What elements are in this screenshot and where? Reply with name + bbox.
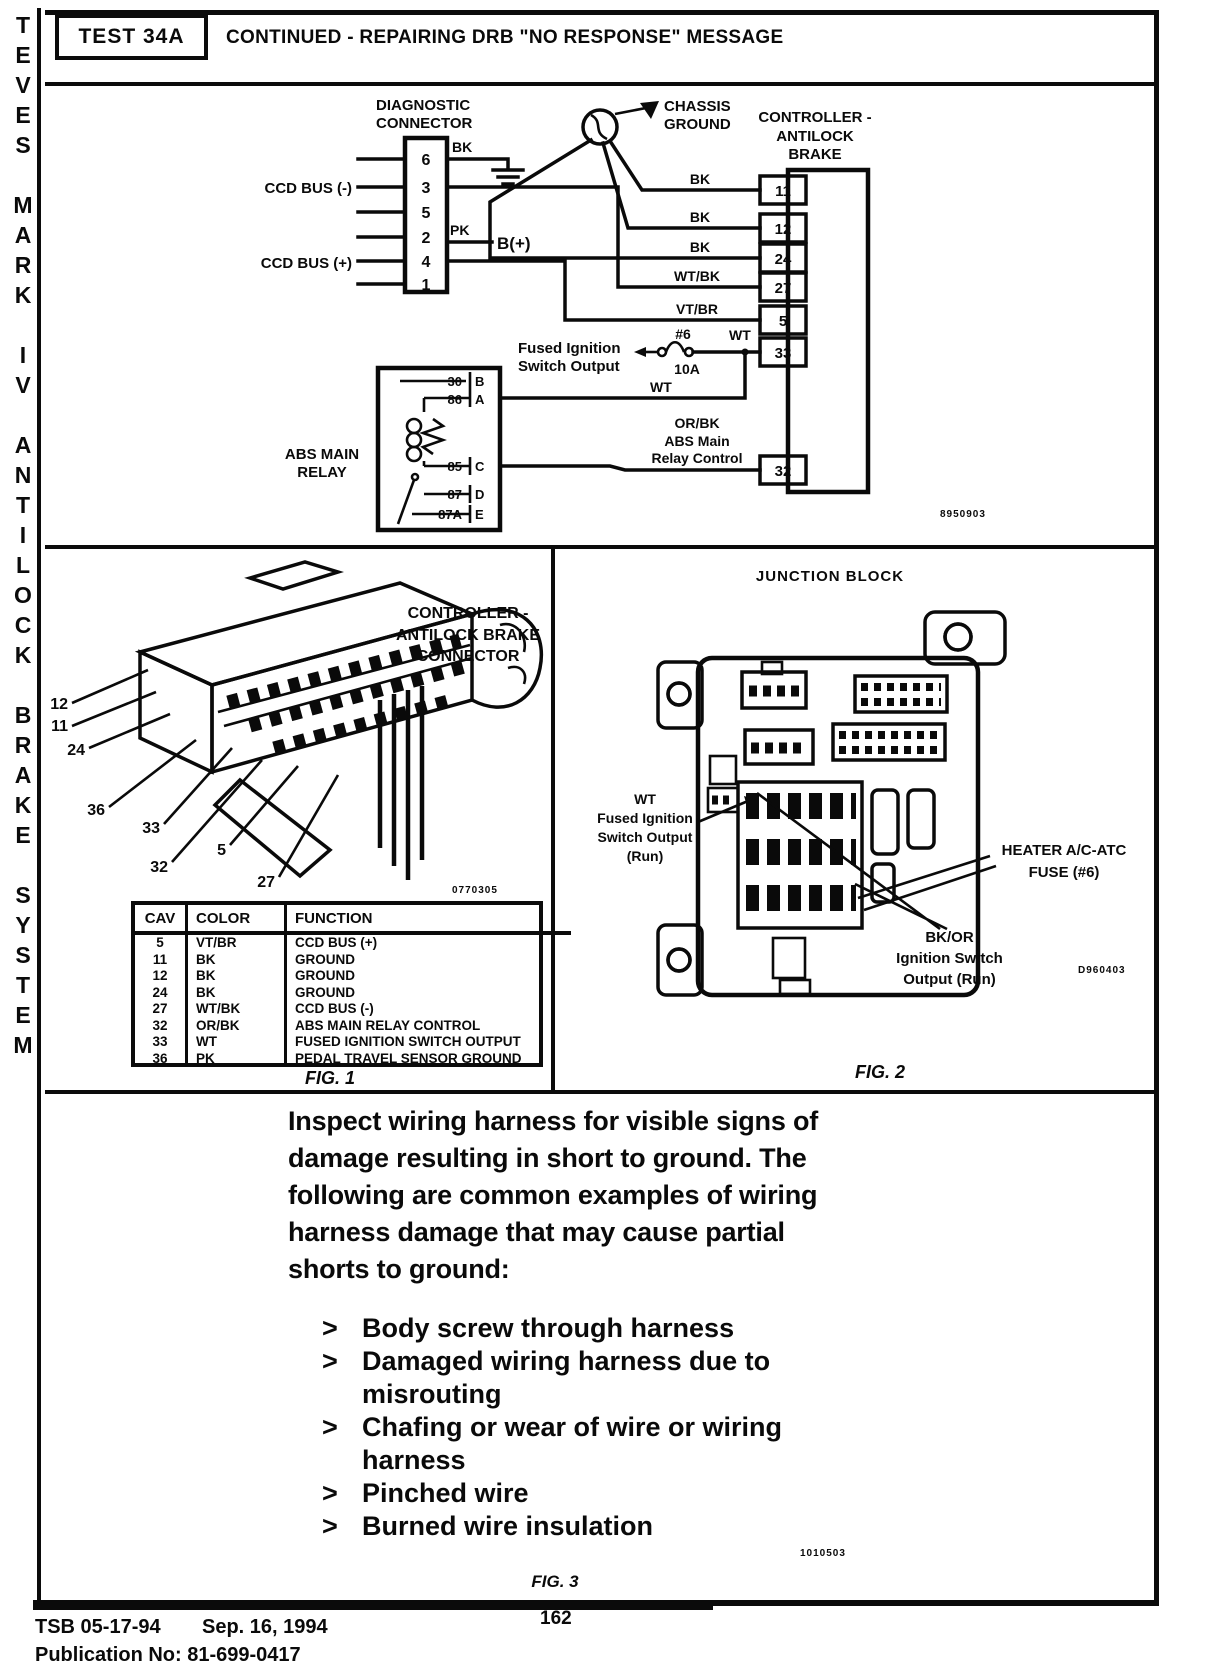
connector-isometric-body	[140, 562, 541, 880]
table-row: 32OR/BKABS MAIN RELAY CONTROL	[135, 1018, 571, 1035]
svg-text:11: 11	[51, 718, 68, 735]
svg-text:ANTILOCK: ANTILOCK	[776, 128, 854, 145]
table-row: 36PKPEDAL TRAVEL SENSOR GROUND	[135, 1051, 571, 1068]
svg-text:33: 33	[142, 820, 160, 837]
diag-pin: 3	[422, 180, 431, 197]
svg-text:12: 12	[775, 221, 792, 238]
svg-text:85: 85	[448, 459, 462, 474]
top-border	[45, 10, 1159, 15]
fig2-caption: FIG. 2	[800, 1062, 960, 1083]
svg-text:24: 24	[775, 251, 792, 268]
svg-text:32: 32	[150, 859, 168, 876]
svg-text:RELAY: RELAY	[297, 464, 346, 481]
chassis-ground-lead	[615, 108, 646, 114]
table-row: 33WTFUSED IGNITION SWITCH OUTPUT	[135, 1034, 571, 1051]
diagnostic-connector-label: DIAGNOSTIC	[376, 97, 470, 114]
sidebar-vertical-title: TEVES MARK IV ANTILOCK BRAKE SYSTEM	[0, 12, 37, 1612]
svg-text:86: 86	[448, 392, 462, 407]
svg-text:11: 11	[775, 183, 791, 200]
svg-text:C: C	[475, 459, 485, 474]
diag-pin: 1	[422, 277, 431, 294]
svg-text:32: 32	[775, 463, 792, 480]
controller-box	[788, 170, 868, 492]
sidebar-divider	[37, 8, 41, 1608]
diagram-code: 8950903	[940, 509, 986, 520]
publication-number: Publication No: 81-699-0417	[35, 1644, 301, 1667]
fig1-code: 0770305	[452, 885, 498, 896]
test-number-box: TEST 34A	[55, 14, 208, 60]
wire-label-bk: BK	[690, 239, 710, 255]
svg-text:A: A	[475, 392, 485, 407]
fig2-leader-lines	[698, 793, 996, 929]
relay-control-label: OR/BK	[674, 415, 719, 431]
fig1-callouts: 12 11 24 36 33 32 5 27	[50, 670, 338, 891]
wiring-diagram: DIAGNOSTIC CONNECTOR 6 3 5 2 4 1 CCD BUS…	[45, 84, 1157, 545]
left-arrow-icon	[634, 347, 646, 357]
bplus-label: B(+)	[497, 234, 531, 253]
table-header: COLOR	[187, 905, 286, 933]
bkor-ignition-label: BK/OR Ignition Switch Output (Run)	[862, 927, 1037, 990]
svg-text:D: D	[475, 487, 484, 502]
list-item: >Body screw through harness	[322, 1312, 867, 1345]
wire-label-bk: BK	[690, 171, 710, 187]
diag-pin: 4	[422, 254, 431, 271]
damage-examples-list: >Body screw through harness >Damaged wir…	[322, 1312, 867, 1543]
test-number-label: TEST 34A	[78, 25, 184, 49]
wire-label-wt2: WT	[650, 379, 672, 395]
svg-text:E: E	[475, 507, 484, 522]
diag-pin: 2	[422, 230, 431, 247]
table-header: FUNCTION	[286, 905, 572, 933]
table-row: 11BKGROUND	[135, 952, 571, 969]
fuse-number: #6	[675, 326, 691, 342]
diagnostic-pin-stubs	[358, 159, 405, 284]
fig3-caption: FIG. 3	[495, 1572, 615, 1592]
list-item: >Burned wire insulation	[322, 1510, 867, 1543]
table-row: 24BKGROUND	[135, 985, 571, 1002]
splice-curve	[591, 115, 607, 139]
bullet-marker: >	[322, 1411, 338, 1444]
svg-text:12: 12	[50, 696, 68, 713]
svg-text:27: 27	[257, 874, 275, 891]
table-header: CAV	[135, 905, 187, 933]
tsb-page: TEVES MARK IV ANTILOCK BRAKE SYSTEM TEST…	[0, 0, 1232, 1672]
wire-label-vtbr: VT/BR	[676, 301, 718, 317]
splice-symbol	[583, 110, 617, 144]
ground-symbol	[447, 159, 523, 184]
bullet-marker: >	[322, 1312, 338, 1345]
wire-label-bk-ground: BK	[452, 139, 472, 155]
fuse-terminal	[658, 348, 666, 356]
svg-text:24: 24	[67, 742, 85, 759]
svg-text:27: 27	[775, 280, 792, 297]
svg-text:5: 5	[217, 842, 226, 859]
wire-label-wt: WT	[729, 327, 751, 343]
page-number: 162	[540, 1608, 572, 1630]
tsb-number: TSB 05-17-94	[35, 1616, 161, 1639]
bk-wire-11	[610, 141, 760, 190]
heater-fuse-label: HEATER A/C-ATC FUSE (#6)	[975, 840, 1153, 884]
cav-color-function-table: CAV COLOR FUNCTION 5VT/BRCCD BUS (+) 11B…	[135, 905, 571, 1067]
svg-text:ABS Main: ABS Main	[664, 433, 729, 449]
ccd-bus-minus-label: CCD BUS (-)	[265, 180, 353, 197]
wire-label-bk: BK	[690, 209, 710, 225]
wire-label-pk: PK	[450, 222, 469, 238]
fuse-element	[666, 342, 684, 352]
svg-text:Switch Output: Switch Output	[518, 358, 620, 375]
page-title: CONTINUED - REPAIRING DRB "NO RESPONSE" …	[226, 27, 783, 49]
bullet-marker: >	[322, 1345, 338, 1378]
chassis-ground-label: CHASSIS	[664, 98, 731, 115]
fig2-code: D960403	[1078, 965, 1126, 976]
inspection-paragraph: Inspect wiring harness for visible signs…	[288, 1103, 870, 1288]
svg-text:87: 87	[448, 487, 462, 502]
svg-text:BRAKE: BRAKE	[788, 146, 841, 163]
ccd-bus-plus-label: CCD BUS (+)	[261, 255, 352, 272]
svg-text:30: 30	[448, 374, 462, 389]
svg-text:33: 33	[775, 345, 792, 362]
bullet-marker: >	[322, 1477, 338, 1510]
diag-pin: 6	[422, 152, 431, 169]
bullet-marker: >	[322, 1510, 338, 1543]
relay-control-wire	[500, 466, 760, 470]
fig3-code: 1010503	[800, 1548, 846, 1559]
svg-text:GROUND: GROUND	[664, 116, 731, 133]
list-item: >Damaged wiring harness due to misroutin…	[322, 1345, 867, 1411]
relay-coil-icon	[398, 398, 443, 524]
table-row: 12BKGROUND	[135, 968, 571, 985]
list-item: >Chafing or wear of wire or wiring harne…	[322, 1411, 867, 1477]
abs-main-relay-label: ABS MAIN	[285, 446, 359, 463]
svg-text:Relay Control: Relay Control	[651, 450, 742, 466]
tsb-date: Sep. 16, 1994	[202, 1616, 328, 1639]
table-row: 5VT/BRCCD BUS (+)	[135, 933, 571, 952]
diag-pin: 5	[422, 205, 431, 222]
wire-label-wtbk: WT/BK	[674, 268, 720, 284]
fused-ignition-label: Fused Ignition	[518, 340, 621, 357]
controller-label: CONTROLLER -	[758, 109, 871, 126]
bottom-border-smear	[33, 1606, 713, 1610]
table-row: 27WT/BKCCD BUS (-)	[135, 1001, 571, 1018]
list-item: >Pinched wire	[322, 1477, 867, 1510]
controller-pins: 11 12 24 27 5 33 32	[760, 176, 806, 484]
svg-text:CONNECTOR: CONNECTOR	[376, 115, 473, 132]
wt-fused-ignition-label: WT Fused Ignition Switch Output (Run)	[575, 790, 715, 866]
fuse-rating: 10A	[674, 361, 700, 377]
svg-text:5: 5	[779, 313, 787, 330]
bk-wire-12	[603, 143, 760, 228]
chassis-ground-arrow-icon	[640, 101, 659, 119]
svg-text:B: B	[475, 374, 484, 389]
svg-text:36: 36	[87, 802, 105, 819]
fig1-caption: FIG. 1	[255, 1068, 405, 1089]
svg-text:87A: 87A	[438, 507, 462, 522]
